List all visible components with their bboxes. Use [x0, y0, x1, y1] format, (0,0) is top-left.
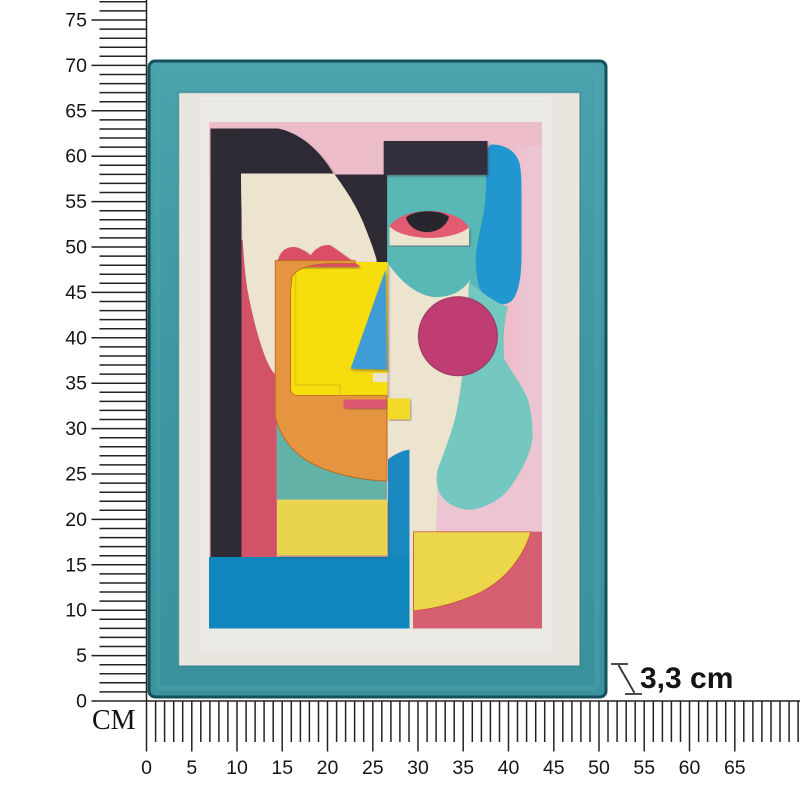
svg-text:25: 25: [362, 757, 384, 779]
svg-text:55: 55: [633, 757, 655, 779]
svg-text:15: 15: [65, 554, 87, 576]
svg-text:70: 70: [65, 55, 87, 77]
svg-text:50: 50: [65, 237, 87, 259]
svg-text:0: 0: [76, 691, 87, 713]
svg-text:35: 35: [65, 373, 87, 395]
svg-text:15: 15: [271, 757, 293, 779]
svg-text:20: 20: [317, 757, 339, 779]
svg-text:30: 30: [407, 757, 429, 779]
svg-text:CM: CM: [92, 705, 136, 736]
svg-text:65: 65: [724, 757, 746, 779]
svg-text:40: 40: [498, 757, 520, 779]
svg-text:60: 60: [65, 146, 87, 168]
svg-text:25: 25: [65, 464, 87, 486]
svg-text:10: 10: [226, 757, 248, 779]
svg-text:5: 5: [186, 757, 197, 779]
svg-text:50: 50: [588, 757, 610, 779]
svg-text:40: 40: [65, 327, 87, 349]
svg-text:0: 0: [141, 757, 152, 779]
svg-text:60: 60: [679, 757, 701, 779]
svg-text:65: 65: [65, 100, 87, 122]
svg-text:3,3 cm: 3,3 cm: [640, 662, 733, 695]
svg-text:10: 10: [65, 600, 87, 622]
svg-text:75: 75: [65, 10, 87, 32]
svg-text:55: 55: [65, 191, 87, 213]
svg-text:30: 30: [65, 418, 87, 440]
svg-text:5: 5: [76, 645, 87, 667]
svg-text:45: 45: [65, 282, 87, 304]
svg-text:35: 35: [452, 757, 474, 779]
svg-text:45: 45: [543, 757, 565, 779]
svg-text:20: 20: [65, 509, 87, 531]
